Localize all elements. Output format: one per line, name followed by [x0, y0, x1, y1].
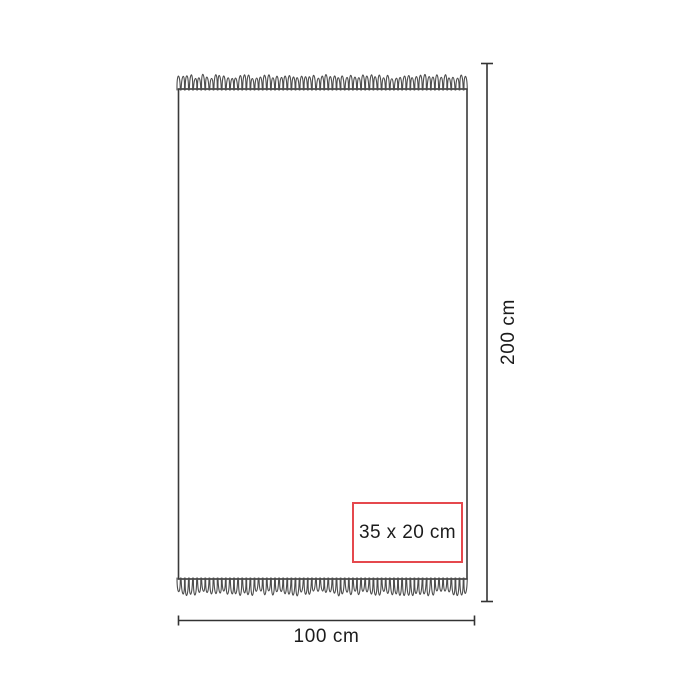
product-dimension-diagram: 35 x 20 cm 200 cm 100 cm — [0, 0, 700, 700]
print-area-box: 35 x 20 cm — [352, 502, 463, 563]
print-area-label: 35 x 20 cm — [359, 522, 456, 544]
diagram-graphics — [0, 0, 700, 700]
bottom-fringe — [177, 578, 467, 596]
height-dimension-line — [481, 64, 493, 602]
top-fringe — [177, 74, 467, 90]
width-dimension-label: 100 cm — [178, 625, 475, 649]
height-dimension-label: 200 cm — [497, 242, 521, 422]
width-dimension-line — [179, 616, 475, 626]
